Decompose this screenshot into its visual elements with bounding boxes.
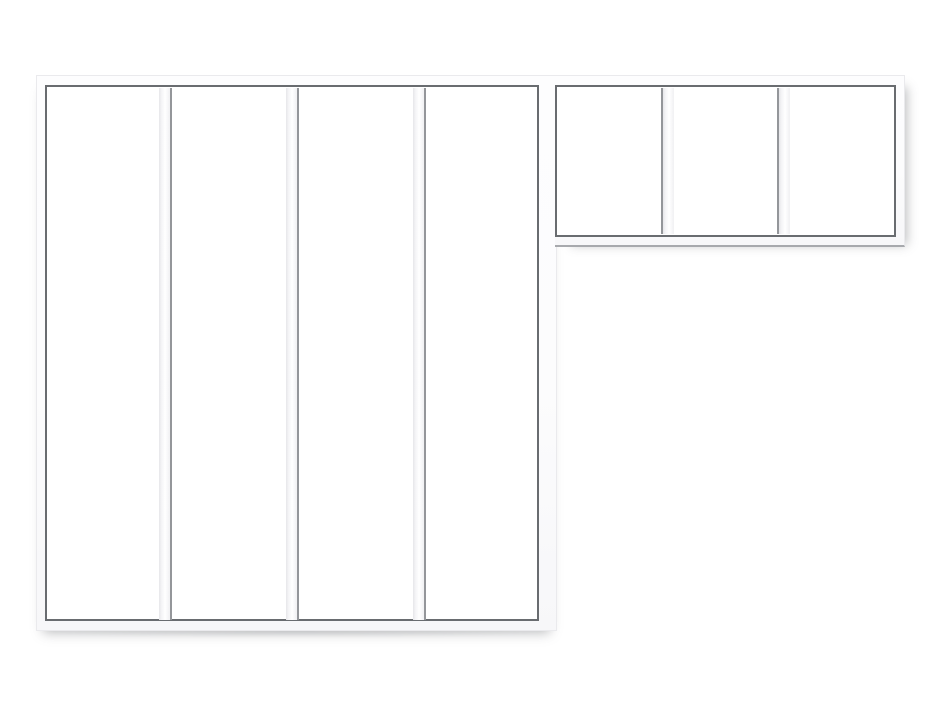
glass-panel xyxy=(557,87,669,235)
mullion xyxy=(777,88,790,234)
transom-section-panels xyxy=(557,87,894,235)
glass-panel xyxy=(292,87,415,619)
mullion xyxy=(413,88,426,620)
glass-panel xyxy=(415,87,538,619)
glass-panel xyxy=(782,87,894,235)
mullion xyxy=(286,88,299,620)
tall-section-frame xyxy=(36,75,557,631)
mullion xyxy=(661,88,674,234)
glass-panel xyxy=(47,87,170,619)
transom-section-frame xyxy=(555,75,905,247)
transom-section-glazing-opening xyxy=(555,85,896,237)
drop-shadow xyxy=(40,630,554,637)
glass-panel xyxy=(170,87,293,619)
product-image-canvas xyxy=(0,0,940,706)
mullion xyxy=(159,88,172,620)
glass-panel xyxy=(669,87,781,235)
